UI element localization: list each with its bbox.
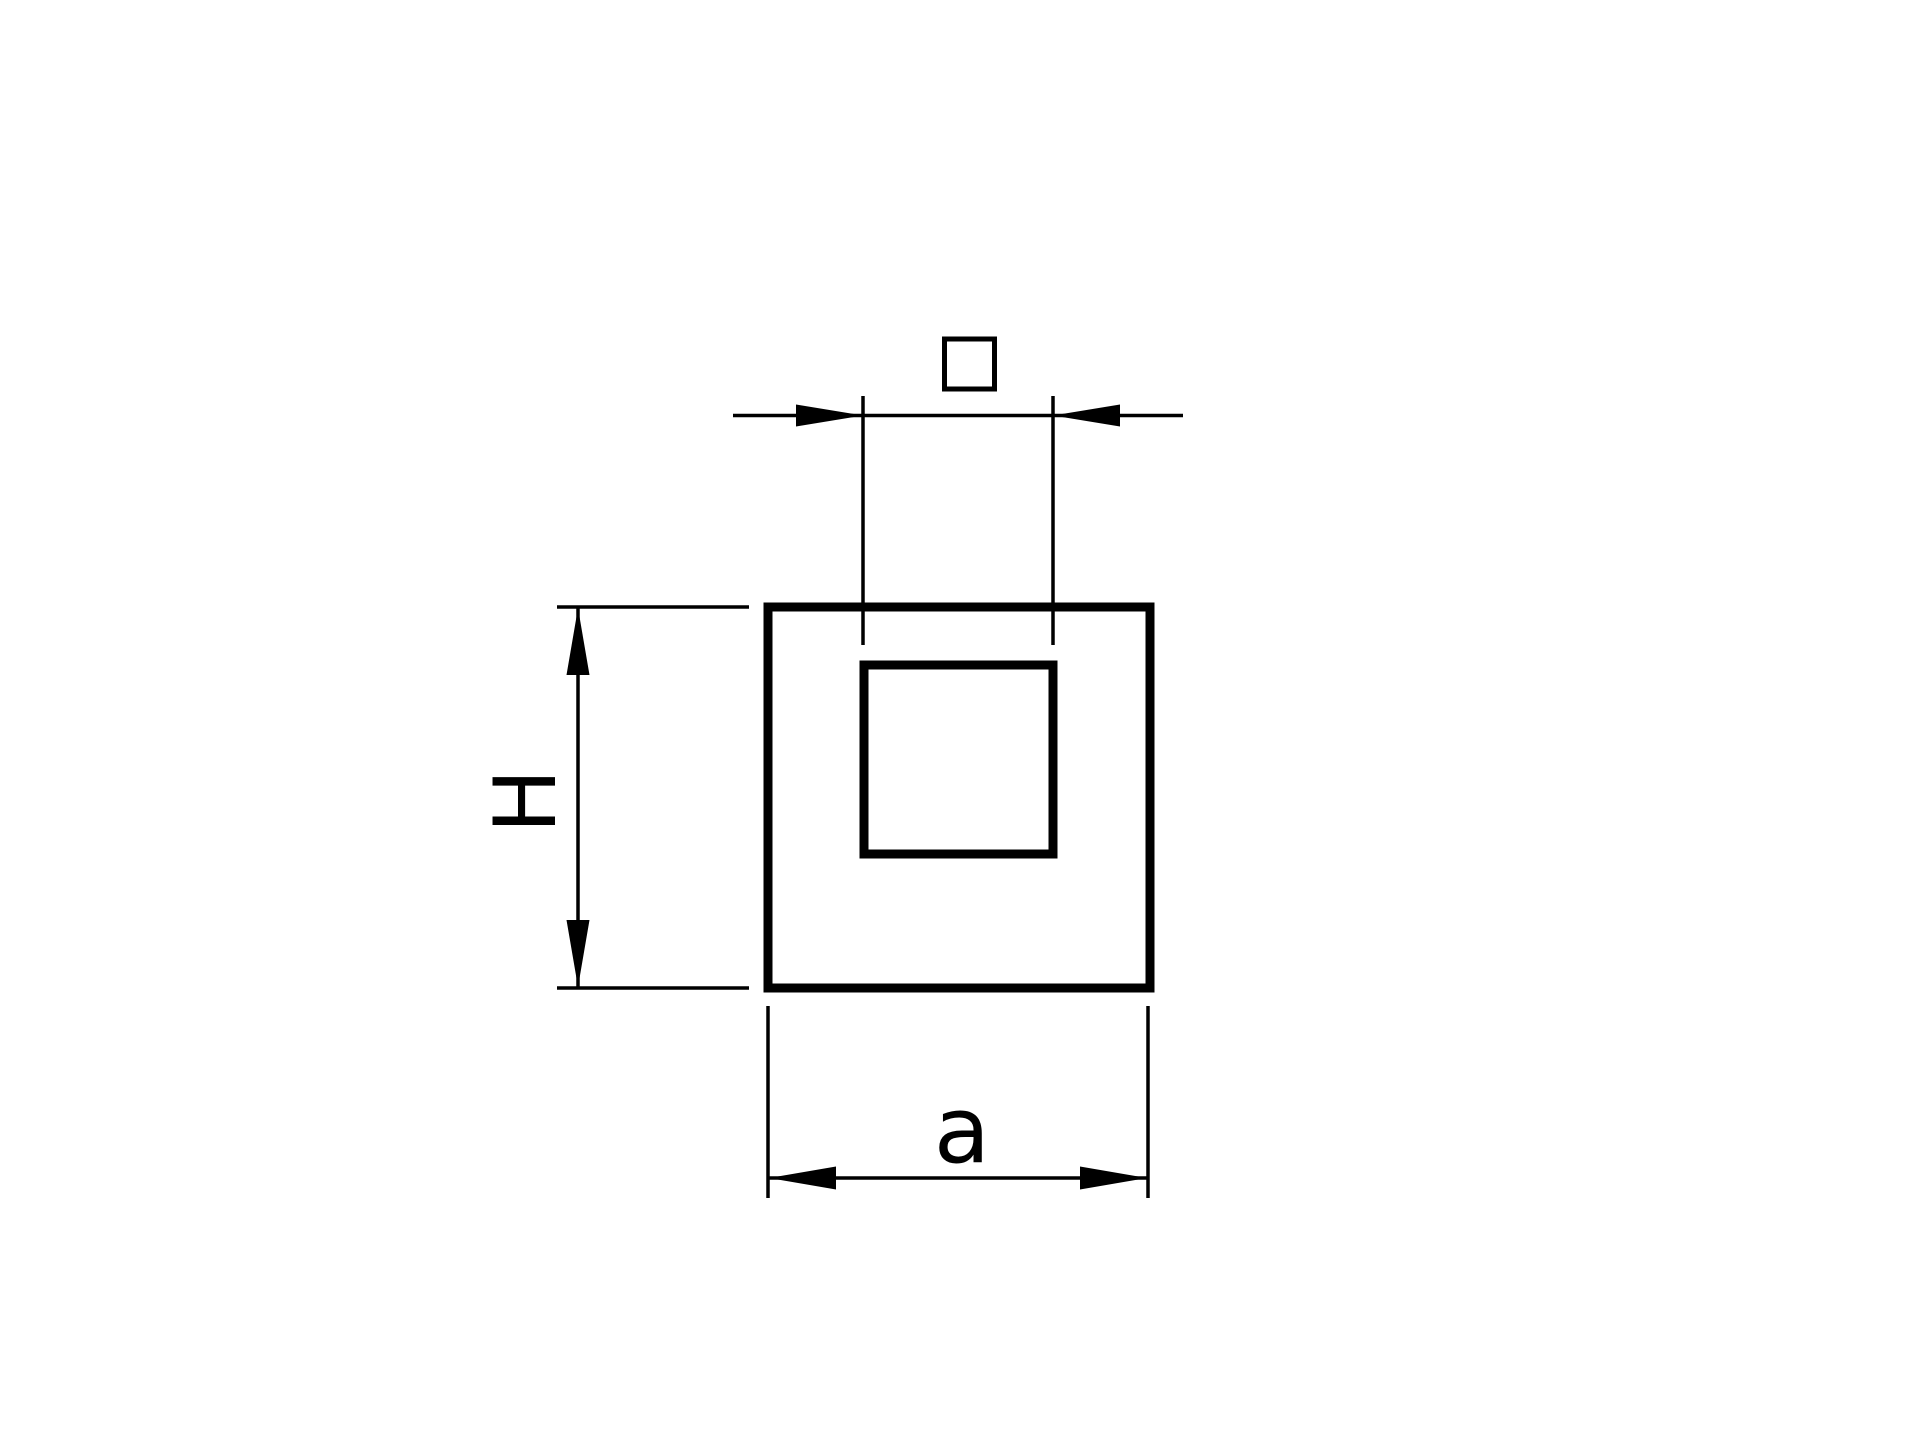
inner-square-hole [864, 665, 1053, 854]
dimension-outer-height: H [476, 607, 749, 988]
arrowhead-down-icon [567, 920, 590, 987]
width-label: a [934, 1077, 990, 1184]
arrowhead-left-icon [769, 1167, 836, 1190]
dimension-outer-width: a [768, 1006, 1148, 1198]
arrowhead-right-icon [796, 405, 863, 427]
square-tube-section [768, 607, 1150, 988]
arrowhead-right-icon [1080, 1167, 1147, 1190]
square-symbol-icon [945, 339, 995, 389]
arrowhead-left-icon [1053, 405, 1120, 427]
arrowhead-up-icon [567, 608, 590, 675]
dimension-inner-width [733, 339, 1183, 645]
drawing-canvas: H a [0, 0, 1920, 1440]
technical-drawing: H a [0, 0, 1920, 1440]
height-label: H [476, 769, 576, 834]
